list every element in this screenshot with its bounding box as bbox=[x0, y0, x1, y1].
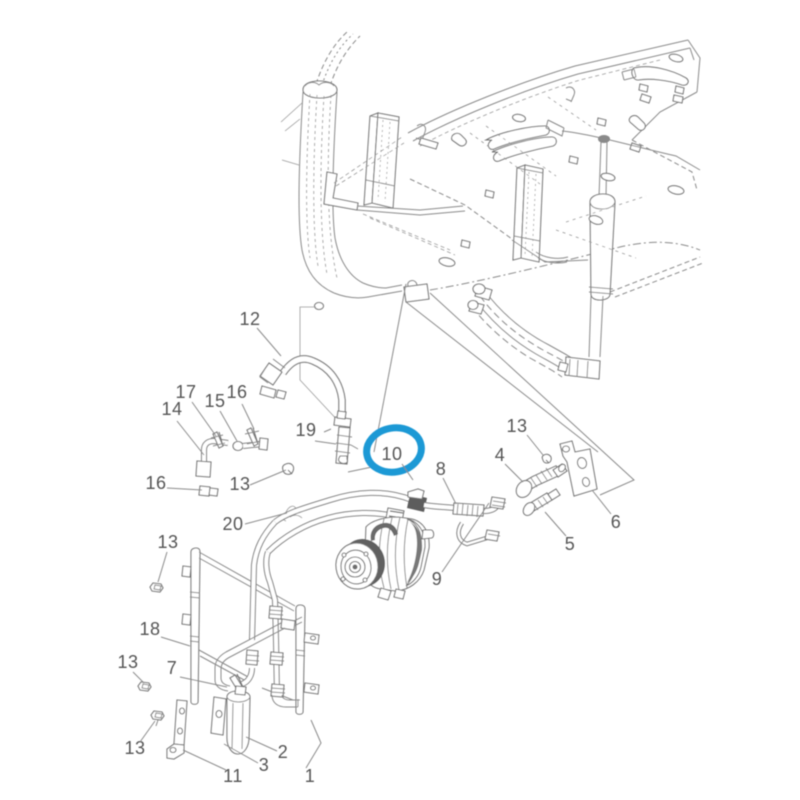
svg-text:8: 8 bbox=[436, 459, 447, 479]
svg-text:10: 10 bbox=[381, 444, 402, 464]
svg-text:11: 11 bbox=[223, 766, 243, 786]
svg-text:14: 14 bbox=[161, 399, 182, 419]
svg-text:19: 19 bbox=[295, 420, 316, 440]
svg-text:9: 9 bbox=[432, 569, 443, 589]
svg-text:2: 2 bbox=[278, 742, 289, 762]
svg-text:20: 20 bbox=[222, 514, 243, 534]
svg-text:13: 13 bbox=[124, 738, 145, 758]
svg-text:5: 5 bbox=[565, 534, 576, 554]
svg-text:1: 1 bbox=[305, 766, 316, 786]
svg-text:15: 15 bbox=[204, 391, 225, 411]
svg-text:13: 13 bbox=[506, 416, 527, 436]
svg-text:3: 3 bbox=[259, 755, 270, 775]
svg-text:16: 16 bbox=[226, 382, 247, 402]
svg-text:16: 16 bbox=[145, 473, 166, 493]
svg-text:7: 7 bbox=[167, 658, 178, 678]
svg-text:13: 13 bbox=[229, 474, 250, 494]
svg-text:13: 13 bbox=[117, 652, 138, 672]
svg-text:4: 4 bbox=[495, 445, 506, 465]
svg-text:18: 18 bbox=[139, 619, 160, 639]
svg-text:12: 12 bbox=[239, 309, 260, 329]
svg-text:6: 6 bbox=[611, 512, 622, 532]
svg-text:13: 13 bbox=[157, 532, 178, 552]
